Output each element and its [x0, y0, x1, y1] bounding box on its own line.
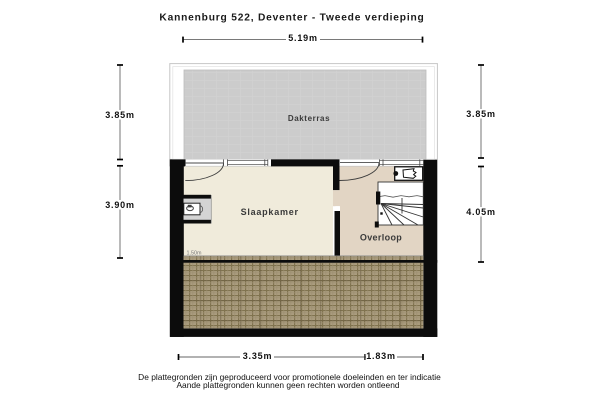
svg-text:Dakterras: Dakterras [288, 114, 330, 123]
svg-text:1.83m: 1.83m [366, 351, 396, 361]
svg-text:Aande plattegronden kunnen gee: Aande plattegronden kunnen geen rechten … [176, 380, 399, 390]
svg-text:3.85m: 3.85m [466, 109, 496, 119]
svg-text:Slaapkamer: Slaapkamer [241, 207, 299, 217]
svg-text:3.35m: 3.35m [243, 351, 273, 361]
svg-text:Overloop: Overloop [360, 233, 402, 243]
svg-text:Kannenburg 522, Deventer - Twe: Kannenburg 522, Deventer - Tweede verdie… [159, 12, 424, 23]
svg-text:3.85m: 3.85m [105, 110, 135, 120]
svg-text:3.90m: 3.90m [105, 200, 135, 210]
svg-text:4.05m: 4.05m [466, 207, 496, 217]
svg-text:1.50m: 1.50m [187, 251, 202, 257]
svg-text:5.19m: 5.19m [288, 33, 318, 43]
